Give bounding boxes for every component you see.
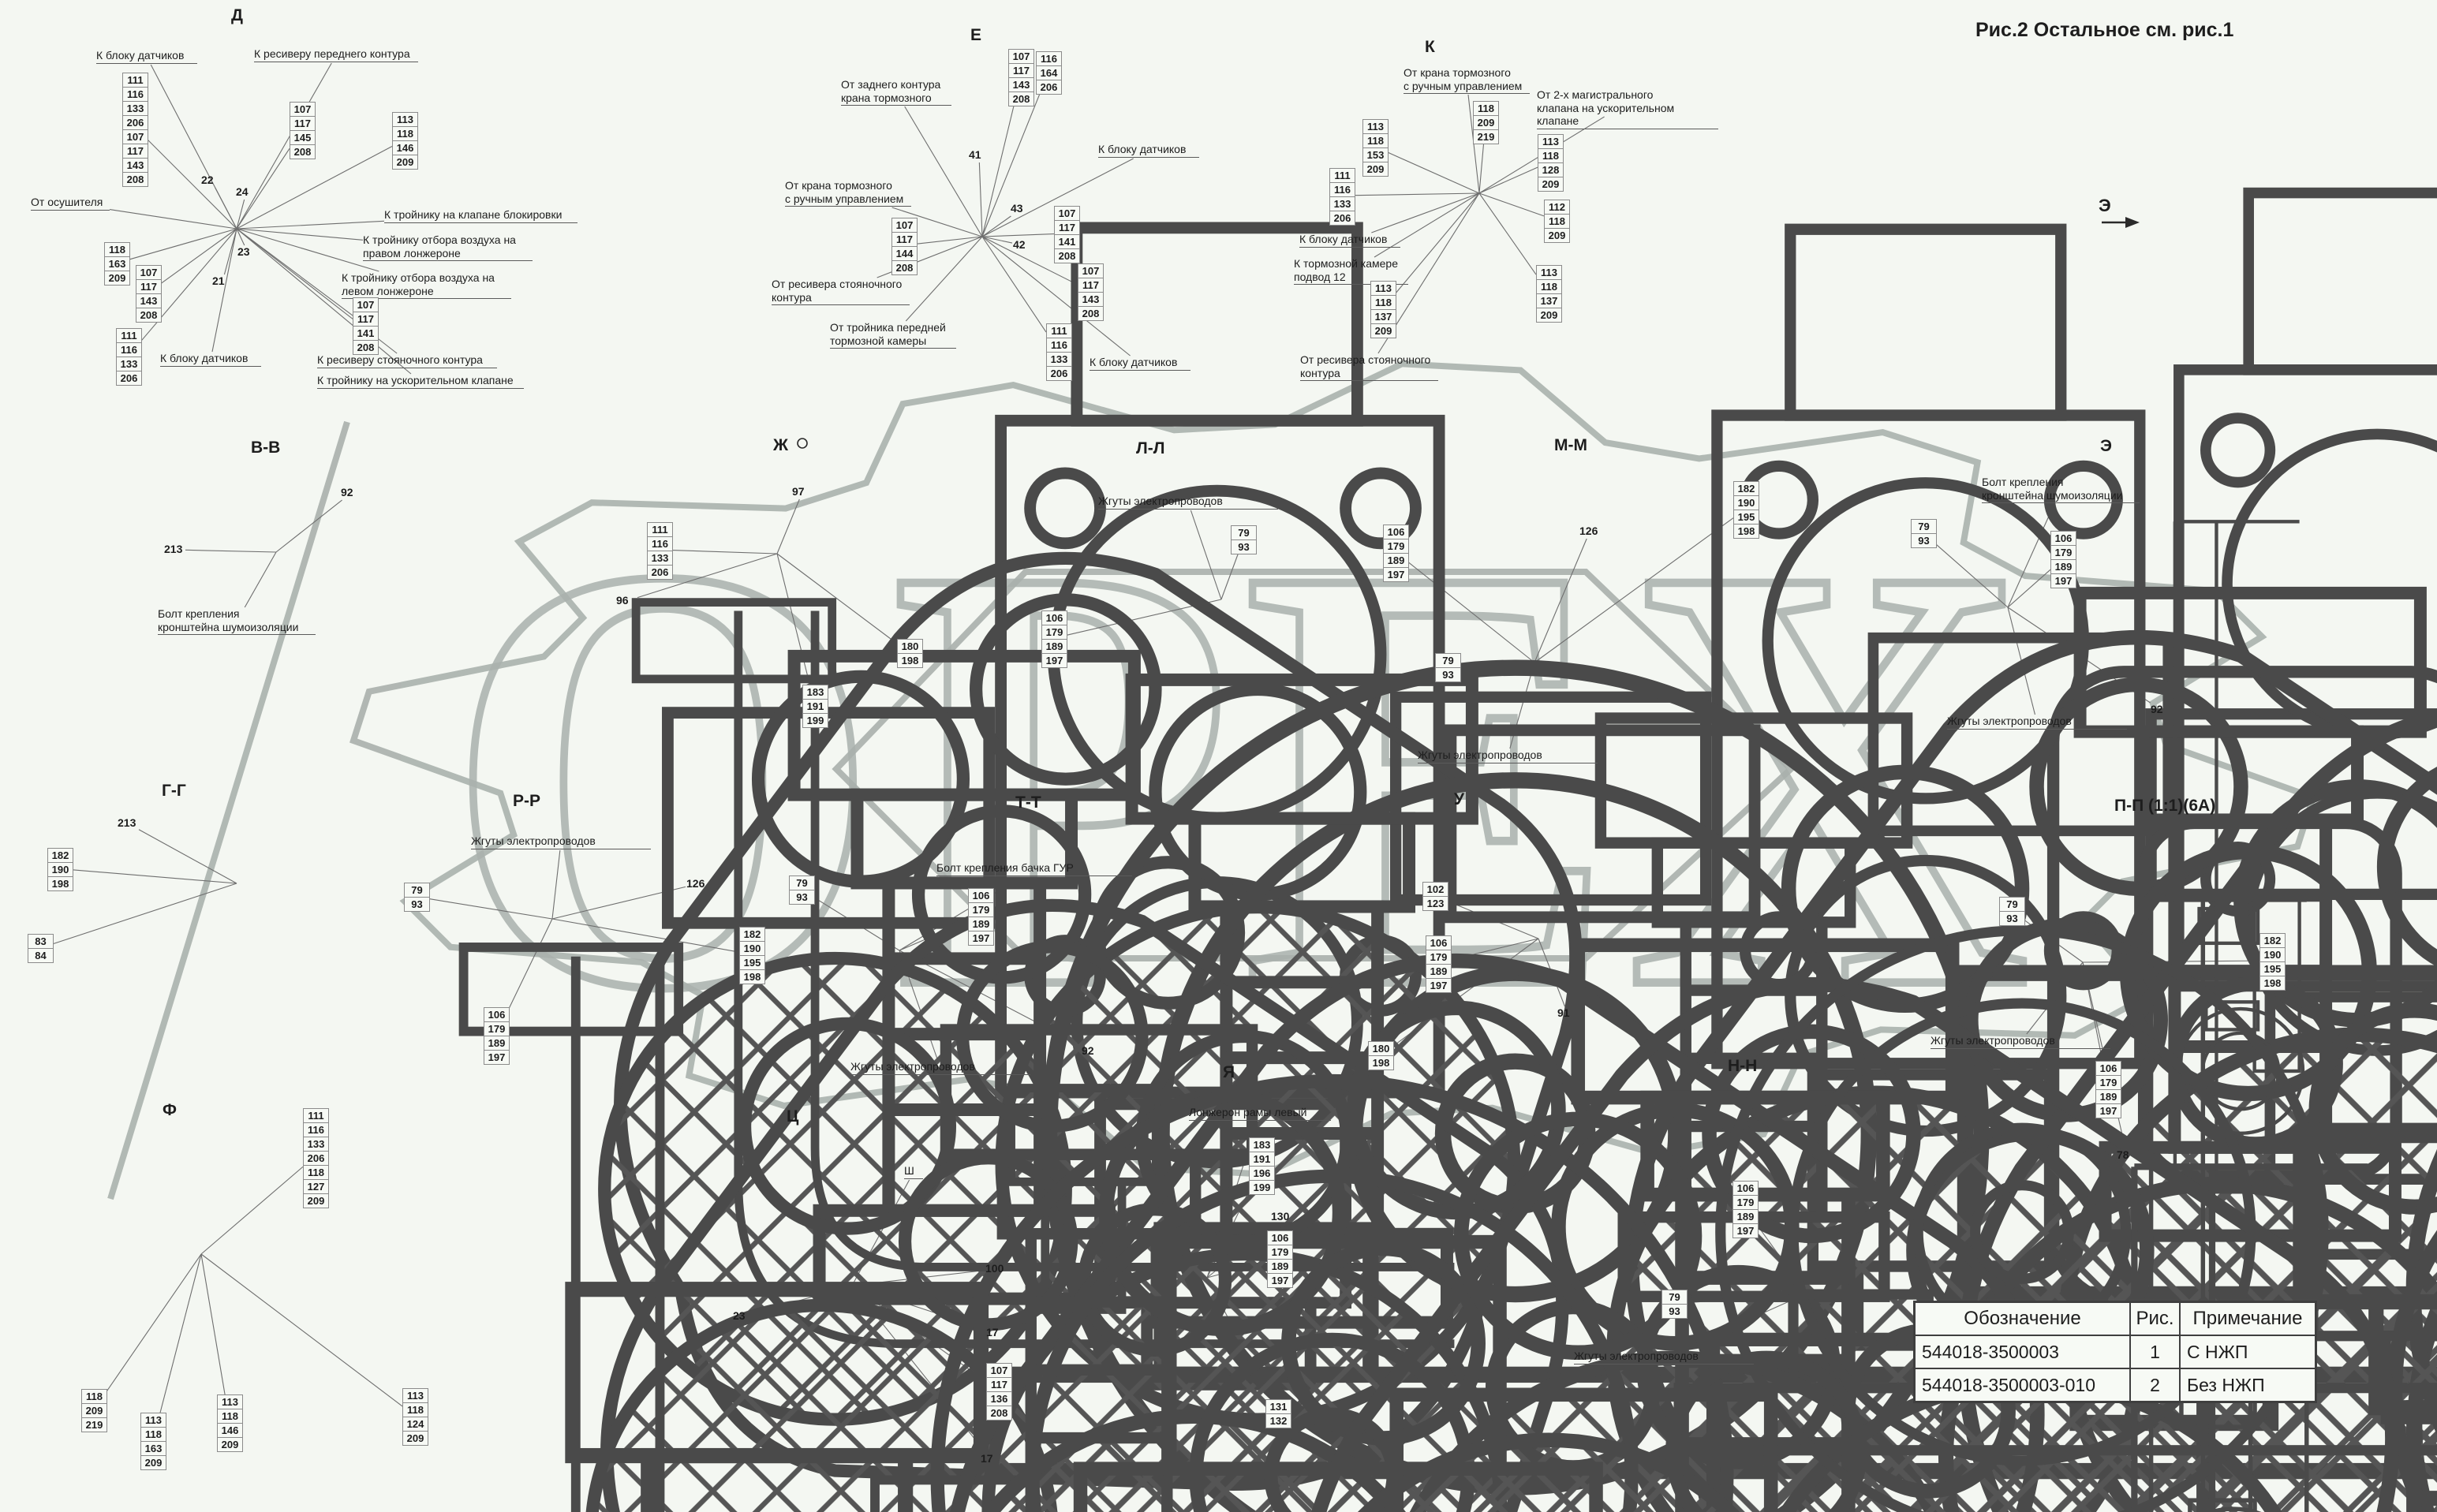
callout-box: 179 (484, 1021, 510, 1036)
callout-box: 198 (1368, 1055, 1394, 1070)
callout-box: 107 (1078, 263, 1104, 278)
callout-box: 111 (303, 1108, 329, 1123)
callout-stack: 113118124209 (402, 1389, 428, 1446)
annotation-label: Жгуты электропроводов (850, 1060, 1030, 1075)
callout-stack: 7993 (1661, 1290, 1688, 1319)
callout-box: 179 (968, 902, 994, 917)
callout-box: 195 (2259, 961, 2286, 976)
callout-box: 117 (891, 232, 918, 247)
callout-box: 118 (217, 1409, 243, 1424)
callout-box: 189 (1426, 964, 1452, 979)
figure-title: Рис.2 Остальное см. рис.1 (1975, 19, 2233, 42)
callout-stack: 106179189197 (1267, 1231, 1293, 1288)
callout-box: 182 (2259, 933, 2286, 948)
callout-box: 133 (1329, 196, 1355, 211)
section-title-view-ya: Я (1223, 1063, 1235, 1082)
callout-box: 113 (217, 1394, 243, 1409)
callout-box: 84 (28, 948, 54, 963)
annotation-label: К блоку датчиков (96, 49, 197, 64)
callout-stack: 182190195198 (1733, 482, 1759, 539)
annotation-label: К тройнику на клапане блокировки (384, 208, 577, 223)
callout-box: 179 (1426, 950, 1452, 965)
callout-number: 17 (986, 1326, 999, 1338)
callout-box: 209 (1536, 308, 1562, 323)
annotation-label: От крана тормозного с ручным управлением (1404, 66, 1530, 94)
callout-box: 133 (303, 1137, 329, 1152)
annotation-label: Жгуты электропроводов (1098, 495, 1278, 510)
table-cell-note: Без НЖП (2180, 1368, 2316, 1402)
callout-stack: 182190195198 (2259, 934, 2286, 991)
callout-number: 100 (985, 1262, 1004, 1275)
callout-box: 107 (1054, 206, 1080, 221)
callout-box: 189 (968, 917, 994, 931)
callout-box: 183 (802, 685, 828, 700)
callout-box: 111 (122, 73, 148, 88)
callout-box: 141 (353, 326, 379, 341)
callout-box: 209 (104, 271, 130, 286)
callout-stack: 7993 (1231, 526, 1257, 554)
callout-box: 180 (1368, 1041, 1394, 1056)
annotation-label: Жгуты электропроводов (471, 834, 651, 849)
callout-box: 79 (1231, 525, 1257, 540)
callout-box: 118 (303, 1165, 329, 1180)
annotation-label: Лонжерон рамы левый (1189, 1106, 1331, 1121)
callout-box: 191 (802, 699, 828, 714)
callout-stack: 107117143208 (1008, 50, 1034, 106)
callout-number: 43 (1011, 202, 1023, 215)
callout-stack: 106179189197 (2050, 532, 2076, 588)
callout-box: 198 (1733, 524, 1759, 539)
callout-box: 106 (1383, 525, 1409, 539)
callout-box: 118 (1538, 148, 1564, 163)
section-title-view-e: Е (970, 26, 981, 45)
callout-stack: 131132 (1265, 1400, 1291, 1428)
callout-box: 163 (140, 1441, 166, 1456)
callout-number: 97 (792, 485, 805, 498)
callout-box: 136 (986, 1391, 1012, 1406)
table-cell-figure: 1 (2130, 1335, 2180, 1368)
annotation-label: К тройнику отбора воздуха на левом лонже… (342, 271, 511, 299)
callout-box: 113 (1538, 134, 1564, 149)
callout-box: 107 (1008, 49, 1034, 64)
callout-box: 190 (2259, 947, 2286, 962)
callout-box: 111 (116, 328, 142, 343)
callout-box: 83 (28, 934, 54, 949)
callout-stack: 106179189197 (1041, 611, 1067, 668)
callout-box: 209 (1538, 177, 1564, 192)
callout-box: 128 (1538, 162, 1564, 177)
callout-box: 197 (2050, 573, 2076, 588)
callout-box: 79 (789, 875, 815, 890)
callout-box: 219 (81, 1417, 107, 1432)
callout-stack: 112118209 (1544, 200, 1570, 243)
callout-box: 141 (1054, 234, 1080, 249)
callout-box: 79 (404, 883, 430, 898)
callout-stack: 118209219 (1473, 102, 1499, 144)
callout-stack: 107117143208 (1078, 264, 1104, 321)
callout-box: 183 (1249, 1137, 1275, 1152)
callout-number: 24 (236, 185, 249, 198)
callout-box: 106 (1041, 610, 1067, 625)
callout-box: 195 (739, 955, 765, 970)
callout-box: 118 (81, 1389, 107, 1404)
callout-stack: 113118146209 (392, 113, 418, 170)
callout-box: 118 (1536, 279, 1562, 294)
callout-box: 208 (122, 172, 148, 187)
annotation-label: К блоку датчиков (1299, 233, 1400, 248)
callout-box: 209 (1544, 228, 1570, 243)
callout-box: 111 (1329, 168, 1355, 183)
callout-box: 197 (1267, 1273, 1293, 1288)
callout-box: 118 (1362, 133, 1389, 148)
annotation-label: К блоку датчиков (1098, 143, 1199, 158)
callout-stack: 111116133206 (1329, 169, 1355, 226)
callout-box: 189 (1383, 553, 1409, 568)
callout-box: 206 (1329, 211, 1355, 226)
callout-stack: 107117143208 (136, 266, 162, 323)
callout-box: 118 (104, 242, 130, 257)
callout-box: 113 (140, 1413, 166, 1428)
callout-box: 189 (484, 1036, 510, 1051)
callout-stack: 113118153209 (1362, 120, 1389, 177)
callout-box: 106 (968, 888, 994, 903)
callout-stack: 106179189197 (1732, 1182, 1759, 1238)
callout-box: 146 (392, 140, 418, 155)
annotation-label: От ресивера стояночного контура (1300, 353, 1438, 381)
table-cell-designation: 544018-3500003 (1915, 1335, 2130, 1368)
callout-box: 113 (392, 112, 418, 127)
callout-stack: 183191196199 (1249, 1138, 1275, 1195)
callout-box: 197 (1426, 978, 1452, 993)
callout-box: 106 (1267, 1230, 1293, 1245)
callout-box: 93 (1661, 1304, 1688, 1319)
callout-box: 106 (484, 1007, 510, 1022)
callout-box: 209 (81, 1403, 107, 1418)
callout-box: 208 (353, 340, 379, 355)
callout-box: 208 (891, 260, 918, 275)
callout-number: 213 (118, 816, 136, 829)
callout-box: 133 (116, 357, 142, 371)
callout-stack: 111116133206107117143208 (122, 73, 148, 187)
callout-box: 182 (1733, 481, 1759, 496)
section-title-view-e2: Э (2100, 437, 2112, 456)
callout-box: 179 (2050, 545, 2076, 560)
callout-box: 196 (1249, 1166, 1275, 1181)
callout-box: 137 (1370, 309, 1396, 324)
annotation-label: От заднего контура крана тормозного (841, 78, 951, 106)
callout-box: 118 (402, 1402, 428, 1417)
parts-table: Обозначение Рис. Примечание 544018-35000… (1913, 1301, 2317, 1403)
callout-box: 93 (1231, 539, 1257, 554)
callout-box: 107 (986, 1363, 1012, 1378)
callout-box: 179 (1732, 1195, 1759, 1210)
callout-box: 209 (1370, 323, 1396, 338)
callout-stack: 8384 (28, 935, 54, 963)
annotation-label: К блоку датчиков (160, 352, 261, 367)
callout-box: 179 (1267, 1245, 1293, 1260)
callout-stack: 113118137209 (1370, 282, 1396, 338)
callout-stack: 111116133206 (116, 329, 142, 386)
annotation-label: К тройнику отбора воздуха на правом лонж… (363, 233, 533, 261)
callout-box: 107 (290, 102, 316, 117)
callout-stack: 7993 (404, 883, 430, 912)
callout-box: 208 (1054, 248, 1080, 263)
callout-box: 189 (2095, 1089, 2121, 1104)
callout-box: 145 (290, 130, 316, 145)
callout-stack: 113118128209 (1538, 135, 1564, 192)
callout-stack: 102123 (1422, 883, 1448, 911)
callout-box: 116 (1329, 182, 1355, 197)
callout-box: 131 (1265, 1399, 1291, 1414)
annotation-label: Жгуты электропроводов (1574, 1350, 1754, 1365)
annotation-label: К тройнику на ускорительном клапане (317, 374, 524, 389)
callout-number: 41 (969, 148, 981, 161)
callout-stack: 180198 (897, 640, 923, 668)
callout-box: 143 (1078, 292, 1104, 307)
annotation-label: От осушителя (31, 196, 110, 211)
callout-box: 164 (1036, 65, 1062, 80)
callout-box: 199 (1249, 1180, 1275, 1195)
annotation-label: К ресиверу стояночного контура (317, 353, 497, 368)
callout-box: 182 (739, 927, 765, 942)
callout-box: 106 (2095, 1061, 2121, 1076)
callout-stack: 182190198 (47, 849, 73, 891)
callout-box: 206 (122, 115, 148, 130)
callout-stack: 107117144208 (891, 218, 918, 275)
callout-box: 117 (1054, 220, 1080, 235)
callout-box: 116 (1046, 338, 1072, 353)
callout-box: 133 (647, 551, 673, 566)
callout-stack: 7993 (1911, 520, 1937, 548)
callout-box: 195 (1733, 510, 1759, 525)
callout-box: 146 (217, 1423, 243, 1438)
callout-box: 107 (891, 218, 918, 233)
callout-box: 133 (122, 101, 148, 116)
callout-box: 198 (2259, 976, 2286, 991)
section-title-view-ll: Л-Л (1136, 439, 1164, 458)
callout-box: 189 (1041, 639, 1067, 654)
callout-box: 107 (353, 297, 379, 312)
callout-stack: 106179189197 (1383, 525, 1409, 582)
callout-box: 93 (1911, 533, 1937, 548)
table-header-note: Примечание (2180, 1302, 2316, 1335)
callout-box: 209 (402, 1431, 428, 1446)
annotation-label: От крана тормозного с ручным управлением (785, 179, 911, 207)
section-title-view-f: Ф (163, 1101, 177, 1120)
callout-box: 209 (1473, 115, 1499, 130)
callout-number: 78 (2117, 1148, 2129, 1161)
diagram-sections: ДК блоку датчиковК ресиверу переднего ко… (0, 0, 2437, 1512)
callout-box: 117 (290, 116, 316, 131)
callout-box: 106 (1732, 1181, 1759, 1196)
callout-box: 117 (986, 1377, 1012, 1392)
callout-box: 93 (404, 897, 430, 912)
callout-box: 209 (303, 1193, 329, 1208)
callout-box: 116 (116, 342, 142, 357)
section-title-view-d: Д (231, 6, 243, 25)
callout-box: 209 (217, 1437, 243, 1452)
annotation-label: Жгуты электропроводов (1931, 1034, 2110, 1049)
callout-box: 124 (402, 1417, 428, 1432)
section-title-view-gg: Г-Г (162, 782, 186, 801)
callout-box: 198 (739, 969, 765, 984)
callout-box: 107 (122, 129, 148, 144)
annotation-label: Жгуты электропроводов (1947, 715, 2127, 730)
callout-stack: 106179189197 (2095, 1062, 2121, 1118)
callout-box: 117 (122, 144, 148, 159)
annotation-label: Ш (904, 1164, 923, 1179)
callout-box: 189 (1732, 1209, 1759, 1224)
callout-stack: 113118163209 (140, 1413, 166, 1470)
section-title-view-rr: Р-Р (513, 792, 540, 811)
callout-number: Э (2099, 196, 2111, 216)
callout-box: 208 (290, 144, 316, 159)
callout-box: 208 (1078, 306, 1104, 321)
callout-box: 116 (647, 536, 673, 551)
section-title-view-mm: М-М (1554, 436, 1587, 455)
callout-stack: 106179189197 (1426, 936, 1452, 993)
callout-box: 107 (136, 265, 162, 280)
callout-box: 144 (891, 246, 918, 261)
callout-box: 79 (1661, 1290, 1688, 1305)
callout-box: 117 (1078, 278, 1104, 293)
table-cell-figure: 2 (2130, 1368, 2180, 1402)
callout-stack: 107117141208 (353, 298, 379, 355)
callout-box: 199 (802, 713, 828, 728)
annotation-label: От тройника передней тормозной камеры (830, 321, 956, 349)
callout-box: 118 (140, 1427, 166, 1442)
callout-box: 198 (47, 876, 73, 891)
callout-box: 79 (1435, 653, 1461, 668)
callout-number: 92 (341, 486, 353, 498)
callout-box: 198 (897, 653, 923, 668)
callout-box: 208 (1008, 91, 1034, 106)
callout-box: 197 (968, 931, 994, 946)
callout-box: 123 (1422, 896, 1448, 911)
callout-stack: 111116133206118127209 (303, 1109, 329, 1208)
callout-box: 113 (1362, 119, 1389, 134)
callout-box: 79 (1999, 897, 2025, 912)
callout-box: 116 (303, 1122, 329, 1137)
annotation-label: К блоку датчиков (1090, 356, 1190, 371)
diagram-stage: ОРЕХ (0, 0, 2437, 1512)
annotation-label: Болт крепления кронштейна шумоизоляции (1982, 476, 2140, 503)
callout-box: 143 (1008, 77, 1034, 92)
callout-box: 179 (1383, 539, 1409, 554)
callout-box: 206 (303, 1151, 329, 1166)
callout-box: 93 (789, 890, 815, 905)
callout-box: 118 (1544, 214, 1570, 229)
callout-number: 17 (981, 1452, 993, 1465)
callout-box: 179 (2095, 1075, 2121, 1090)
callout-stack: 107117136208 (986, 1364, 1012, 1421)
callout-number: 22 (201, 174, 214, 186)
annotation-label: От 2-х магистрального клапана на ускорит… (1537, 88, 1718, 129)
callout-box: 132 (1265, 1413, 1291, 1428)
callout-box: 197 (1732, 1223, 1759, 1238)
callout-box: 112 (1544, 200, 1570, 215)
callout-number: 42 (1013, 238, 1026, 251)
callout-box: 189 (1267, 1259, 1293, 1274)
table-cell-designation: 544018-3500003-010 (1915, 1368, 2130, 1402)
callout-box: 208 (136, 308, 162, 323)
callout-box: 118 (392, 126, 418, 141)
annotation-label: От ресивера стояночного контура (772, 278, 910, 305)
callout-box: 197 (1041, 653, 1067, 668)
table-header-designation: Обозначение (1915, 1302, 2130, 1335)
callout-box: 117 (1008, 63, 1034, 78)
callout-box: 197 (2095, 1103, 2121, 1118)
callout-number: 96 (616, 594, 629, 607)
callout-number: 126 (1579, 525, 1598, 537)
callout-box: 106 (1426, 935, 1452, 950)
callout-stack: 118163209 (104, 243, 130, 286)
section-title-view-pp: П-П (1:1)(6А) (2114, 797, 2215, 816)
callout-box: 190 (47, 862, 73, 877)
callout-stack: 106179189197 (968, 889, 994, 946)
section-title-view-tt: Т-Т (1015, 793, 1041, 812)
callout-stack: 107117145208 (290, 103, 316, 159)
section-title-view-ts: Ц (787, 1107, 798, 1126)
section-title-view-u: У (1454, 790, 1464, 809)
callout-number: 91 (1557, 1006, 1570, 1019)
callout-box: 102 (1422, 882, 1448, 897)
callout-number: 126 (686, 877, 705, 890)
callout-box: 106 (2050, 531, 2076, 546)
callout-box: 113 (1536, 265, 1562, 280)
callout-stack: 7993 (1999, 898, 2025, 926)
callout-box: 143 (136, 293, 162, 308)
callout-box: 190 (1733, 495, 1759, 510)
callout-box: 219 (1473, 129, 1499, 144)
callout-box: 79 (1911, 519, 1937, 534)
callout-number: 23 (237, 245, 250, 258)
callout-box: 197 (484, 1050, 510, 1065)
callout-box: 206 (1036, 80, 1062, 95)
annotation-label: Жгуты электропроводов (1418, 749, 1598, 763)
callout-stack: 106179189197 (484, 1008, 510, 1065)
callout-box: 133 (1046, 352, 1072, 367)
section-title-view-nn: Н-Н (1728, 1057, 1757, 1076)
callout-box: 137 (1536, 293, 1562, 308)
callout-stack: 180198 (1368, 1042, 1394, 1070)
callout-box: 116 (1036, 51, 1062, 66)
callout-box: 143 (122, 158, 148, 173)
callout-box: 180 (897, 639, 923, 654)
callout-box: 206 (647, 565, 673, 580)
annotation-label: Болт крепления кронштейна шумоизоляции (158, 607, 316, 635)
table-cell-note: С НЖП (2180, 1335, 2316, 1368)
callout-number: 213 (164, 543, 182, 555)
callout-stack: 118209219 (81, 1390, 107, 1432)
callout-box: 209 (392, 155, 418, 170)
section-title-view-zh: Ж (773, 436, 788, 455)
callout-box: 116 (122, 87, 148, 102)
callout-number: 21 (212, 274, 225, 287)
annotation-label: Болт крепления бачка ГУР (936, 861, 1132, 876)
callout-box: 209 (140, 1455, 166, 1470)
callout-box: 113 (1370, 281, 1396, 296)
callout-box: 117 (136, 279, 162, 294)
callout-box: 209 (1362, 162, 1389, 177)
callout-stack: 107117141208 (1054, 207, 1080, 263)
callout-stack: 182190195198 (739, 928, 765, 984)
callout-stack: 7993 (789, 876, 815, 905)
callout-stack: 111116133206 (1046, 324, 1072, 381)
callout-box: 111 (647, 522, 673, 537)
callout-number: 130 (1271, 1210, 1289, 1223)
callout-stack: 7993 (1435, 654, 1461, 682)
